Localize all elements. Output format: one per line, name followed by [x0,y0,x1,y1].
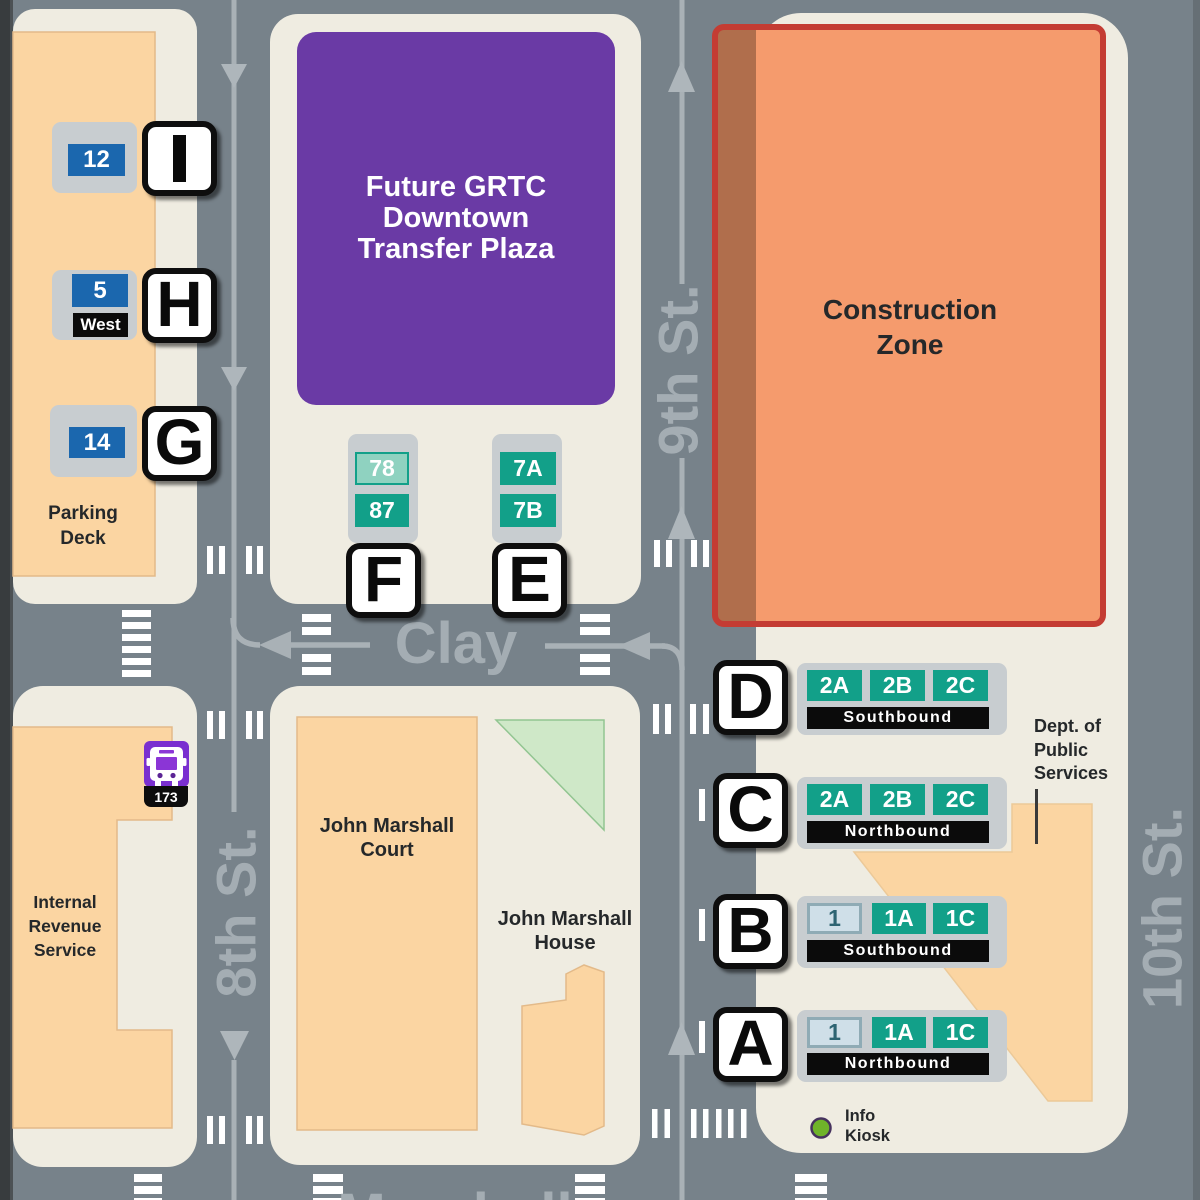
svg-text:Clay: Clay [395,611,518,676]
svg-text:173: 173 [154,789,178,805]
svg-text:10th St.: 10th St. [1131,807,1194,1009]
svg-text:Marshall: Marshall [337,1182,572,1200]
svg-text:8th St.: 8th St. [205,826,268,997]
svg-text:9th St.: 9th St. [647,284,710,455]
